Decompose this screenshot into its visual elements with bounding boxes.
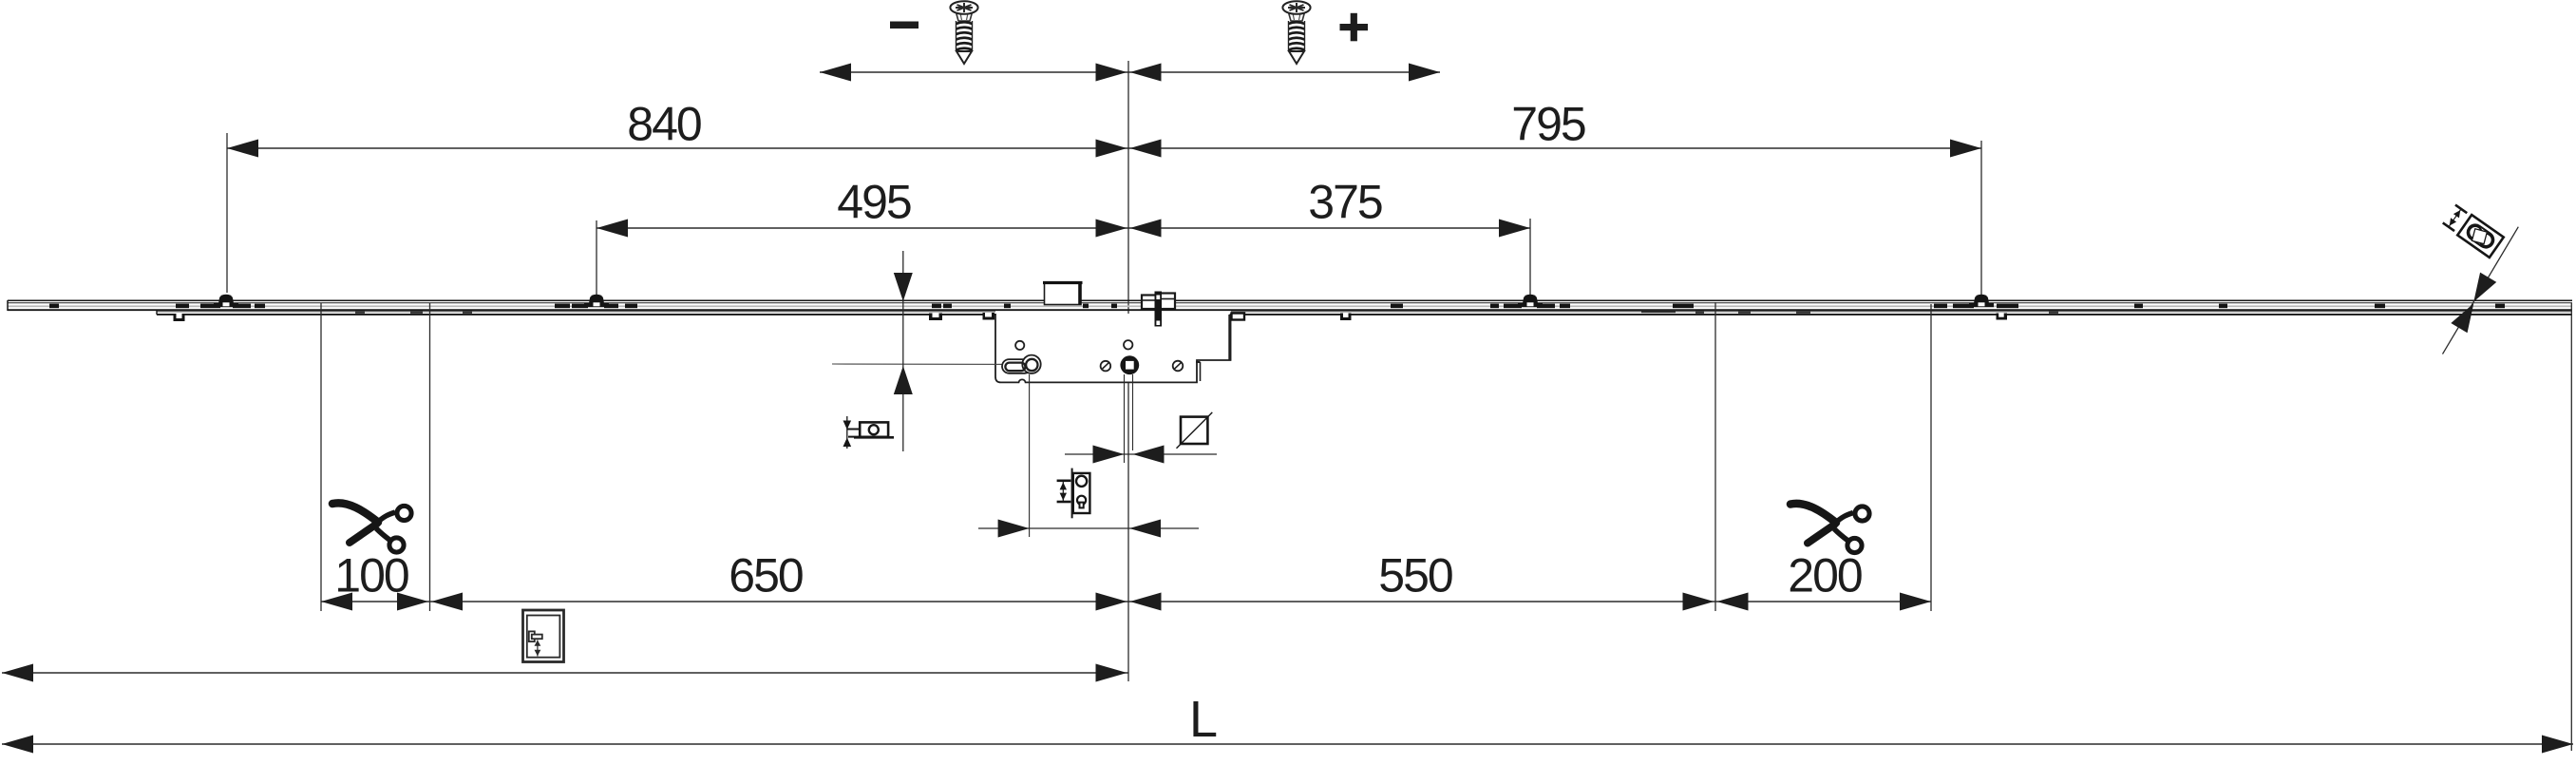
svg-text:550: 550 [1378, 549, 1452, 602]
svg-text:795: 795 [1511, 98, 1585, 151]
svg-text:L: L [1189, 691, 1217, 748]
svg-text:650: 650 [729, 549, 803, 602]
svg-text:840: 840 [627, 98, 701, 151]
svg-text:100: 100 [334, 549, 408, 602]
svg-text:200: 200 [1788, 549, 1862, 602]
svg-text:495: 495 [837, 176, 911, 229]
svg-text:375: 375 [1308, 176, 1382, 229]
